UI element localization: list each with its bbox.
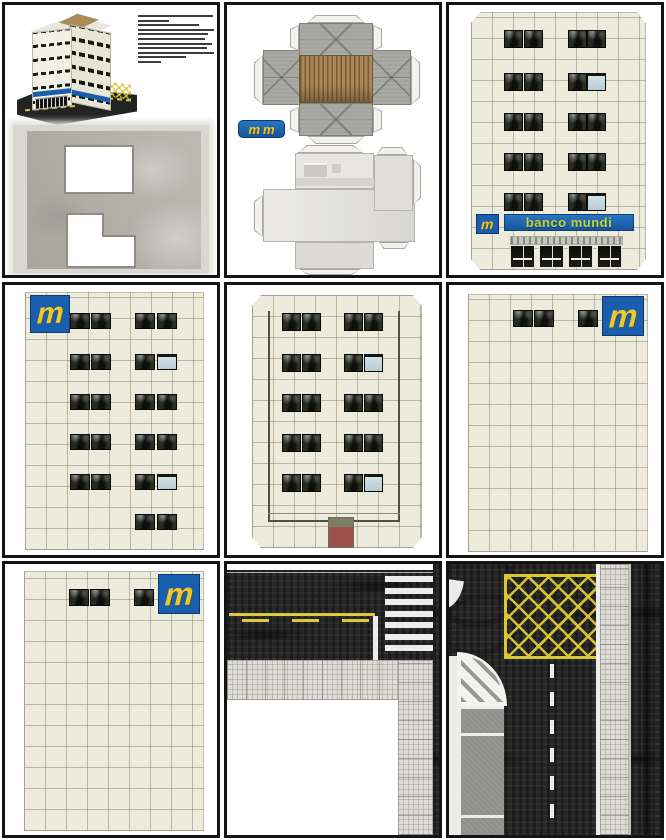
- base-detail-box: [304, 163, 327, 177]
- panel-front-facade: m banco mundi: [446, 2, 664, 278]
- glue-tab-face: [308, 16, 364, 22]
- panel-side-wall-right: m: [446, 282, 664, 558]
- glue-tab-face: [291, 108, 298, 132]
- base-unfold-bottom-column: [295, 242, 374, 269]
- window-dark: [282, 434, 301, 452]
- window-dark: [364, 313, 383, 331]
- window-light: [587, 73, 606, 91]
- center-line-dash: [342, 619, 369, 622]
- window-dark: [157, 434, 177, 450]
- window-dark: [282, 474, 301, 492]
- bottom-logo-block: m: [158, 574, 200, 614]
- panel-preview-and-roof-piece: [2, 2, 220, 278]
- logo-fold-piece: m m: [238, 120, 285, 138]
- lane-dash: [550, 776, 554, 790]
- entrance-door: [510, 245, 535, 268]
- window-dark: [282, 354, 301, 372]
- window-dark: [364, 394, 383, 412]
- panel-road-corner: [224, 561, 442, 838]
- horizontal-road: [227, 570, 439, 660]
- crosswalk-stripe: [385, 645, 433, 651]
- bank-sign-text: banco mundi: [526, 215, 612, 230]
- window-dark: [302, 313, 321, 331]
- window-dark: [587, 153, 606, 171]
- logo-letter: m: [36, 297, 65, 332]
- window-dark: [157, 313, 177, 329]
- window-dark: [587, 30, 606, 48]
- window-light: [364, 474, 383, 492]
- facade-logo-block: m: [476, 214, 499, 234]
- glue-tab: [379, 242, 409, 249]
- window-dark: [70, 394, 90, 410]
- window-dark: [524, 73, 543, 91]
- glue-tab: [373, 25, 382, 51]
- crosswalk-stripe: [385, 611, 433, 617]
- window-dark: [587, 113, 606, 131]
- roof-flap-right: [372, 50, 411, 105]
- glue-tab: [254, 195, 263, 237]
- pipe-horizontal-faint: [268, 513, 400, 514]
- glue-tab-face: [374, 26, 381, 50]
- window-dark: [524, 113, 543, 131]
- entrance-doors: [510, 245, 623, 268]
- window-dark: [302, 474, 321, 492]
- window-dark: [344, 394, 363, 412]
- logo-letter: m: [263, 123, 275, 136]
- logo-letter: m: [164, 575, 194, 613]
- crosswalk-stripe: [385, 622, 433, 628]
- center-line-dash: [242, 619, 269, 622]
- panel-side-wall-left: m: [2, 282, 220, 558]
- glue-tab: [254, 55, 263, 105]
- window-dark: [135, 394, 155, 410]
- window-dark: [504, 73, 523, 91]
- window-dark: [70, 313, 90, 329]
- window-dark: [90, 589, 110, 606]
- window-dark: [578, 310, 598, 327]
- window-dark: [134, 589, 154, 606]
- base-unfold-top: [295, 153, 374, 189]
- crosswalk-stripe: [385, 634, 433, 640]
- glue-tab-face: [291, 26, 298, 50]
- glue-tab: [411, 55, 420, 105]
- window-dark: [524, 153, 543, 171]
- far-right-shade: [643, 564, 651, 835]
- glue-tab-face: [414, 160, 420, 204]
- glue-tab: [297, 145, 363, 153]
- window-dark: [344, 313, 363, 331]
- glue-tab: [307, 15, 365, 23]
- window-dark: [302, 394, 321, 412]
- window-dark: [504, 153, 523, 171]
- window-dark: [69, 589, 89, 606]
- side-logo-block: m: [30, 295, 70, 333]
- center-line-solid: [229, 613, 375, 616]
- entrance-door: [597, 245, 622, 268]
- window-dark: [135, 474, 155, 490]
- lane-dashed-line: [550, 664, 554, 835]
- panel-rear-facade: [224, 282, 442, 558]
- lane-dash: [550, 692, 554, 706]
- panel-road-intersection: [446, 561, 664, 838]
- glue-tab-face: [380, 243, 408, 248]
- base-detail-box-small: [332, 164, 341, 173]
- base-detail-strip: [296, 178, 375, 186]
- glue-tab-face: [255, 56, 262, 104]
- lane-dash: [550, 664, 554, 678]
- window-dark: [135, 354, 155, 370]
- window-dark: [91, 313, 111, 329]
- window-dark: [135, 514, 155, 530]
- far-right-road: [631, 564, 661, 835]
- unfold-group: m m: [227, 5, 439, 275]
- center-line-dashes: [242, 619, 382, 622]
- lane-dash: [550, 748, 554, 762]
- glue-tab-face: [378, 148, 406, 154]
- crosswalk-stripe: [385, 588, 433, 594]
- parking-bays: [461, 706, 504, 835]
- downpipe-right: [398, 311, 400, 521]
- crosswalk-stripe: [385, 599, 433, 605]
- rear-facade-wall: [252, 295, 422, 548]
- glue-tab-face: [300, 270, 360, 274]
- front-facade-wall: m banco mundi: [471, 12, 646, 270]
- logo-letter: m: [248, 123, 260, 136]
- window-dark: [504, 30, 523, 48]
- window-dark: [344, 434, 363, 452]
- window-dark: [157, 394, 177, 410]
- papercraft-sheet: m m m banco mundi: [0, 0, 666, 840]
- right-road-edge: [433, 564, 439, 835]
- crosswalk-stripe: [385, 576, 433, 582]
- roof-center-corrugated: [299, 55, 373, 103]
- lane-dash: [550, 804, 554, 818]
- window-dark: [70, 474, 90, 490]
- window-dark: [524, 193, 543, 211]
- base-unfold-right-column: [374, 155, 413, 211]
- window-dark: [344, 474, 363, 492]
- road-corner-piece: [227, 564, 439, 835]
- roof-flap-bottom: [299, 103, 373, 136]
- yellow-box-junction: [504, 574, 599, 659]
- entrance-door: [568, 245, 593, 268]
- sidewalk-vertical: [398, 660, 433, 835]
- window-light: [587, 193, 606, 211]
- window-dark: [364, 434, 383, 452]
- window-light: [157, 474, 177, 490]
- entrance-door: [539, 245, 564, 268]
- glue-tab: [413, 159, 421, 205]
- center-line-dash: [292, 619, 319, 622]
- downpipe-left: [268, 311, 270, 521]
- glue-tab: [299, 269, 361, 275]
- crosswalk: [385, 574, 433, 660]
- glue-tab-face: [374, 108, 381, 132]
- window-dark: [504, 113, 523, 131]
- window-dark: [568, 30, 587, 48]
- window-dark: [70, 354, 90, 370]
- window-dark: [135, 434, 155, 450]
- glue-tab: [377, 147, 407, 155]
- road-edge-line: [227, 572, 439, 573]
- glue-tab-face: [255, 196, 262, 236]
- entrance-header: [510, 236, 623, 245]
- lane-dash: [550, 720, 554, 734]
- window-dark: [302, 354, 321, 372]
- glue-tab: [290, 107, 299, 133]
- window-dark: [534, 310, 554, 327]
- window-dark: [91, 394, 111, 410]
- window-dark: [524, 30, 543, 48]
- logo-letter: m: [481, 216, 494, 232]
- window-dark: [282, 394, 301, 412]
- parking-divider: [461, 815, 504, 818]
- roof-piece-cutouts: [5, 5, 217, 275]
- glue-tab-face: [308, 137, 364, 143]
- side-wall-right: m: [468, 294, 648, 552]
- parking-divider: [461, 733, 504, 736]
- glue-tab: [290, 25, 299, 51]
- window-dark: [91, 354, 111, 370]
- glue-tab-face: [298, 146, 362, 152]
- side-wall-left: m: [25, 292, 204, 550]
- roof-flap-top: [299, 23, 373, 56]
- intersection-piece: [449, 564, 661, 835]
- right-sidewalk: [600, 564, 629, 835]
- panel-side-wall-bottom: m: [2, 561, 220, 838]
- window-dark: [91, 474, 111, 490]
- window-dark: [504, 193, 523, 211]
- window-dark: [157, 514, 177, 530]
- window-dark: [513, 310, 533, 327]
- corner-hatched-island: [461, 656, 503, 702]
- window-dark: [135, 313, 155, 329]
- bank-sign: banco mundi: [504, 214, 634, 231]
- roof-flap-left: [263, 50, 300, 105]
- window-dark: [568, 153, 587, 171]
- glue-tab: [307, 136, 365, 144]
- glue-tab: [373, 107, 382, 133]
- window-dark: [568, 113, 587, 131]
- window-dark: [568, 193, 587, 211]
- window-light: [157, 354, 177, 370]
- logo-letter: m: [608, 297, 638, 335]
- stop-line: [373, 616, 378, 660]
- rear-service-door: [328, 517, 354, 548]
- window-dark: [344, 354, 363, 372]
- window-dark: [302, 434, 321, 452]
- glue-tab-face: [412, 56, 419, 104]
- window-dark: [282, 313, 301, 331]
- panel-unfolded-pieces: m m: [224, 2, 442, 278]
- right-logo-block: m: [602, 296, 644, 336]
- window-dark: [568, 73, 587, 91]
- window-dark: [70, 434, 90, 450]
- window-light: [364, 354, 383, 372]
- window-dark: [91, 434, 111, 450]
- side-wall-bottom: m: [24, 571, 204, 831]
